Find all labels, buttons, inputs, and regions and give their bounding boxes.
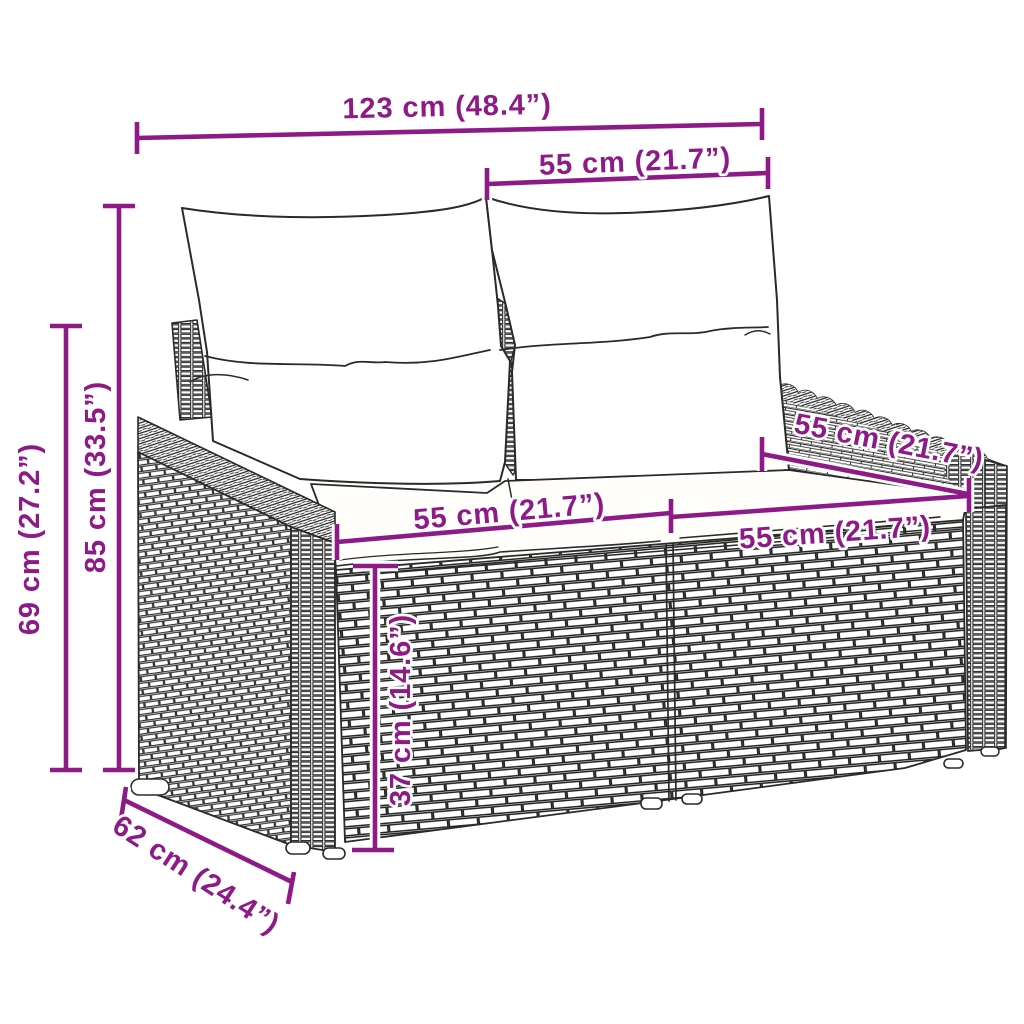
svg-text:123 cm (48.4”): 123 cm (48.4”) bbox=[342, 89, 552, 126]
svg-text:69 cm (27.2”): 69 cm (27.2”) bbox=[14, 443, 46, 635]
svg-text:37 cm (14.6”): 37 cm (14.6”) bbox=[385, 614, 417, 806]
svg-text:85 cm (33.5”): 85 cm (33.5”) bbox=[80, 381, 112, 573]
